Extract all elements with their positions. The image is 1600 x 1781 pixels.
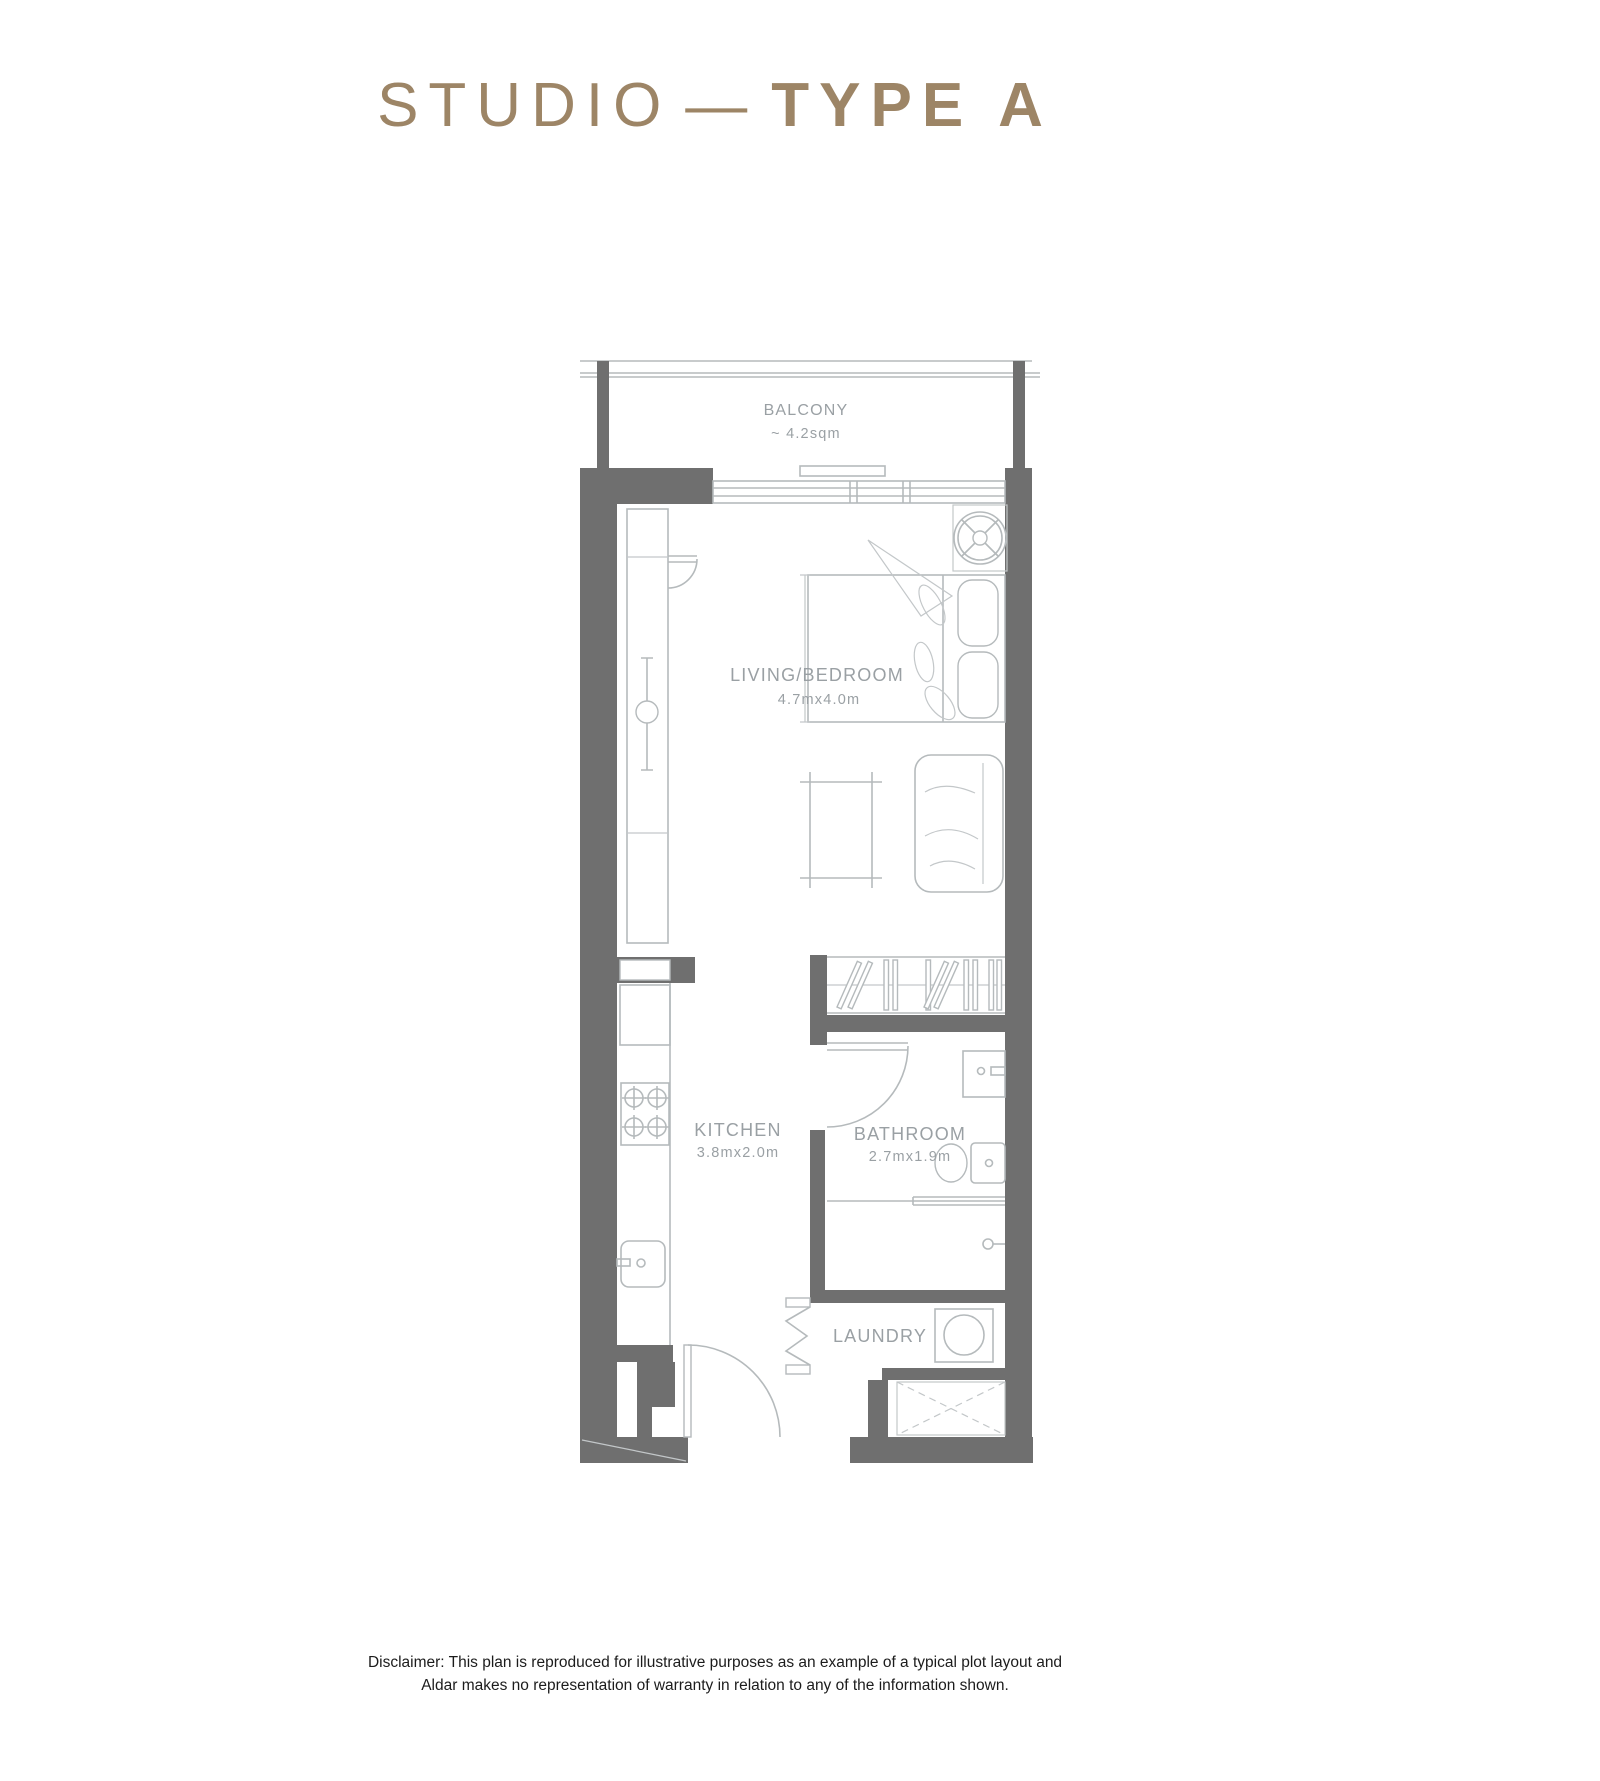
shaft xyxy=(897,1382,1005,1435)
cabinet-door-swing xyxy=(668,556,697,588)
disclaimer: Disclaimer: This plan is reproduced for … xyxy=(0,1651,1430,1697)
bathroom-door xyxy=(827,1043,908,1127)
ceiling-fan-icon xyxy=(953,505,1007,571)
stove-icon xyxy=(621,1083,669,1145)
bifold-door xyxy=(786,1298,810,1374)
leaf-decor xyxy=(914,581,951,628)
living-bedroom-dims: 4.7mx4.0m xyxy=(778,692,861,708)
floor-plan: BALCONY ~ 4.2sqm LIVING/BEDROOM 4.7mx4.0… xyxy=(500,300,1100,1500)
leaf-decor xyxy=(911,641,937,684)
wall-balcony-right-stub xyxy=(1013,361,1025,468)
bathroom-dims: 2.7mx1.9m xyxy=(869,1149,952,1165)
wall-cabinet-inset xyxy=(620,960,670,980)
cabinet-run xyxy=(627,509,697,943)
wall-left xyxy=(580,468,617,1463)
leaf-decor xyxy=(919,681,960,724)
living-bedroom-label: LIVING/BEDROOM xyxy=(730,665,904,685)
wall-right xyxy=(1005,468,1032,1463)
balcony-threshold xyxy=(800,466,885,476)
sofa xyxy=(915,755,1003,892)
entry-door xyxy=(684,1345,780,1437)
bathroom-fixtures xyxy=(827,1043,1005,1249)
balcony-railing xyxy=(580,361,1040,377)
wardrobe xyxy=(827,957,1005,1013)
kitchen-sink-icon xyxy=(617,1241,665,1287)
wall-entry-pillar xyxy=(637,1362,675,1407)
wall-bottom-right xyxy=(850,1437,1033,1463)
coffee-table xyxy=(800,772,882,888)
wall-corridor xyxy=(810,1130,825,1303)
vanity-sink-icon xyxy=(963,1051,1005,1097)
balcony-area: ~ 4.2sqm xyxy=(771,426,841,442)
wall-wardrobe-left-stub xyxy=(810,955,827,1015)
wall-wardrobe-bottom xyxy=(810,1015,1032,1032)
kitchen-dims: 3.8mx2.0m xyxy=(697,1145,780,1161)
disclaimer-line-2: Aldar makes no representation of warrant… xyxy=(0,1674,1430,1697)
bathroom-label: BATHROOM xyxy=(854,1124,966,1144)
title-bold: TYPE A xyxy=(771,71,1053,140)
bed-throw xyxy=(868,540,952,616)
title-dash: — xyxy=(685,71,757,140)
kitchen-fixtures xyxy=(617,983,670,1345)
kitchen-cabinet xyxy=(620,985,670,1045)
kitchen-label: KITCHEN xyxy=(694,1120,781,1140)
wall-kitchen-end-bar xyxy=(580,1345,673,1362)
balcony-label: BALCONY xyxy=(764,402,849,419)
laundry-label: LAUNDRY xyxy=(833,1326,927,1346)
wall-bath-door-jamb xyxy=(810,1032,827,1045)
wall-entry-pillar-lower xyxy=(637,1407,652,1437)
washing-machine-icon xyxy=(935,1309,993,1362)
wall-vestibule-stub xyxy=(868,1380,888,1437)
wall-laundry-bottom xyxy=(882,1368,1012,1380)
shower-head-icon xyxy=(983,1239,1005,1249)
shower-screen xyxy=(827,1197,1005,1205)
wall-bath-laundry xyxy=(823,1290,1007,1303)
pillow xyxy=(958,580,998,646)
sliding-door xyxy=(713,466,1005,503)
title-regular: STUDIO xyxy=(377,71,671,140)
pillow xyxy=(958,652,998,718)
laundry-fixtures xyxy=(786,1298,1005,1435)
wall-balcony-left-stub xyxy=(597,361,609,468)
disclaimer-line-1: Disclaimer: This plan is reproduced for … xyxy=(0,1651,1430,1674)
page-title: STUDIO—TYPE A xyxy=(0,70,1430,142)
